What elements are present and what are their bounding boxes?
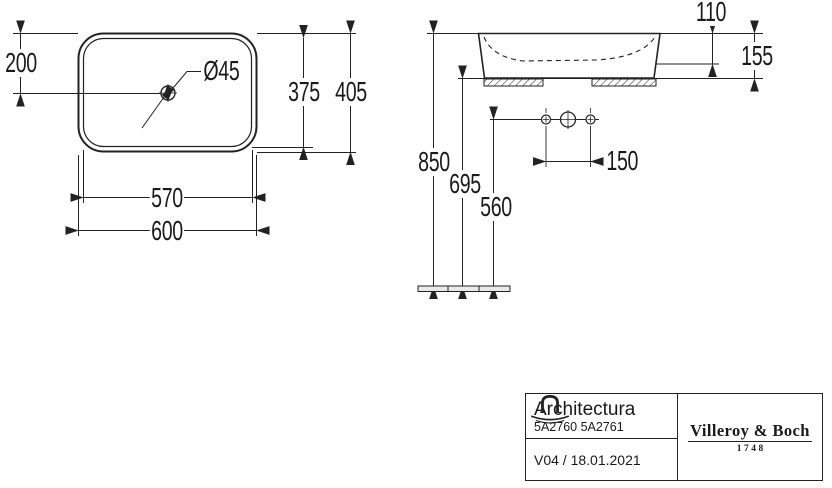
dim-outer-length-405: 405 [334,78,368,106]
plan-view [13,34,356,237]
dim-bowl-depth-110: 110 [695,0,728,26]
mounting-pad-right [592,79,656,86]
mounting-pad-left [484,79,543,86]
dim-underside-height-695: 695 [448,170,482,198]
brand-founding-year: 1748 [734,444,766,454]
dim-inner-length-375: 375 [287,78,321,106]
dim-drain-diameter: Ø45 [202,57,241,85]
dim-rim-height-850: 850 [417,148,451,176]
dim-offset-200: 200 [4,49,38,77]
dim-hole-spacing-150: 150 [605,147,639,175]
dim-outer-width-600: 600 [150,217,184,245]
elevation-view [418,23,763,292]
technical-drawing-page: 200 Ø45 375 405 570 600 110 155 850 695 … [0,0,832,488]
title-block-revision-cell: V04 / 18.01.2021 [526,439,677,480]
title-block-brand-cell: Villeroy & Boch 1748 [678,394,822,480]
brand-wordmark: Villeroy & Boch [688,422,812,441]
dim-overall-height-155: 155 [740,42,774,70]
dim-inner-width-570: 570 [150,184,184,212]
floor-line [418,286,510,292]
basin-profile [479,34,661,79]
dim-tap-height-560: 560 [479,193,513,221]
drawing-revision-date: V04 / 18.01.2021 [534,452,641,468]
villeroy-boch-logo-icon [526,394,574,426]
title-block: Architectura 5A2760 5A2761 V04 / 18.01.2… [525,393,823,481]
